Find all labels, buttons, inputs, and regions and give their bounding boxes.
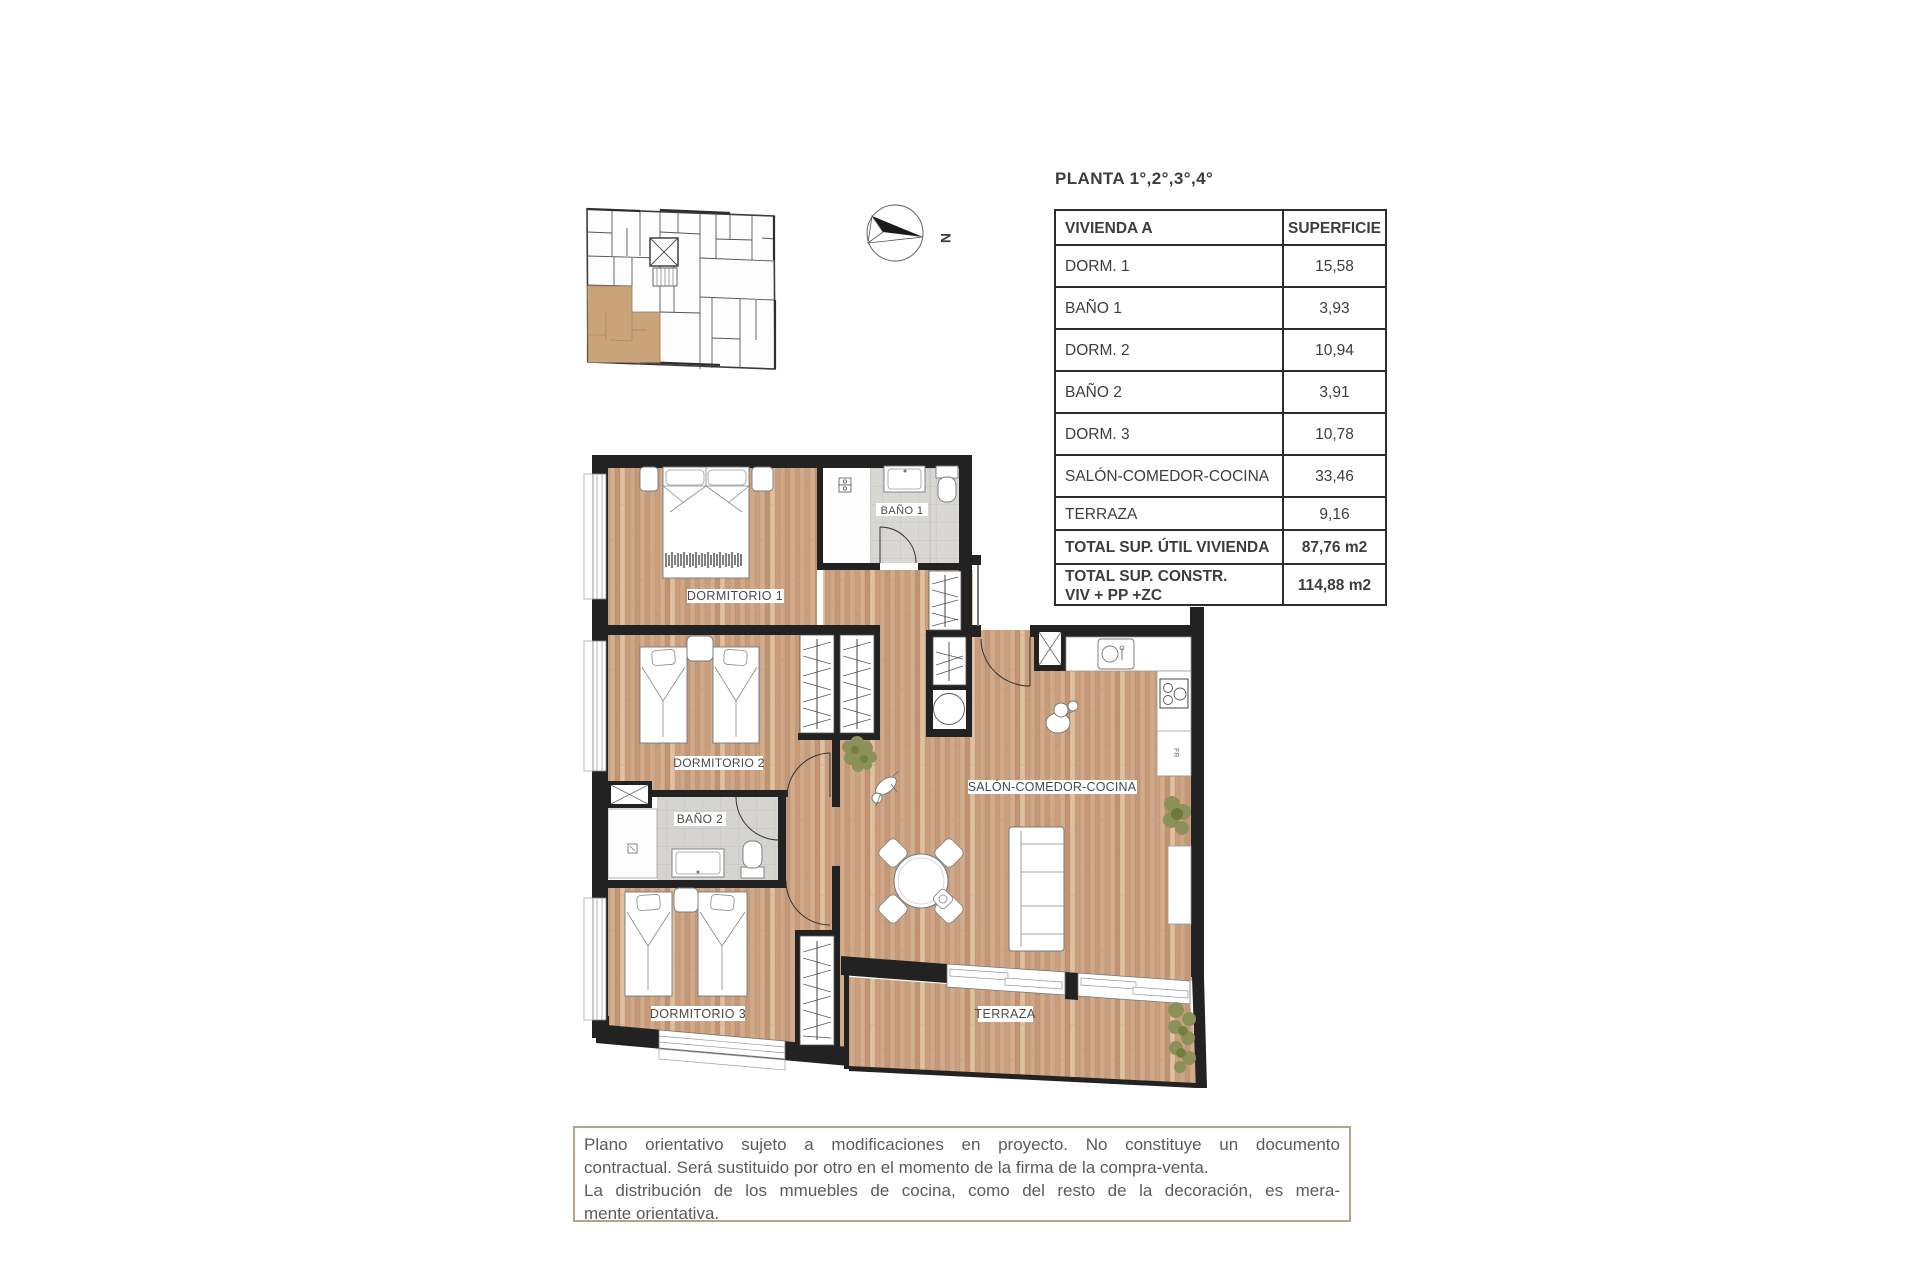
svg-text:FR: FR — [1172, 748, 1179, 757]
svg-text:BAÑO 2: BAÑO 2 — [677, 812, 723, 826]
svg-text:DORMITORIO 2: DORMITORIO 2 — [673, 756, 764, 770]
svg-text:N: N — [938, 233, 954, 243]
svg-text:TERRAZA: TERRAZA — [974, 1007, 1035, 1021]
svg-text:SALÓN-COMEDOR-COCINA: SALÓN-COMEDOR-COCINA — [968, 779, 1137, 794]
svg-text:BAÑO 1: BAÑO 1 — [881, 504, 924, 517]
svg-text:DORMITORIO 1: DORMITORIO 1 — [687, 589, 783, 603]
svg-text:DORMITORIO 3: DORMITORIO 3 — [650, 1007, 746, 1021]
